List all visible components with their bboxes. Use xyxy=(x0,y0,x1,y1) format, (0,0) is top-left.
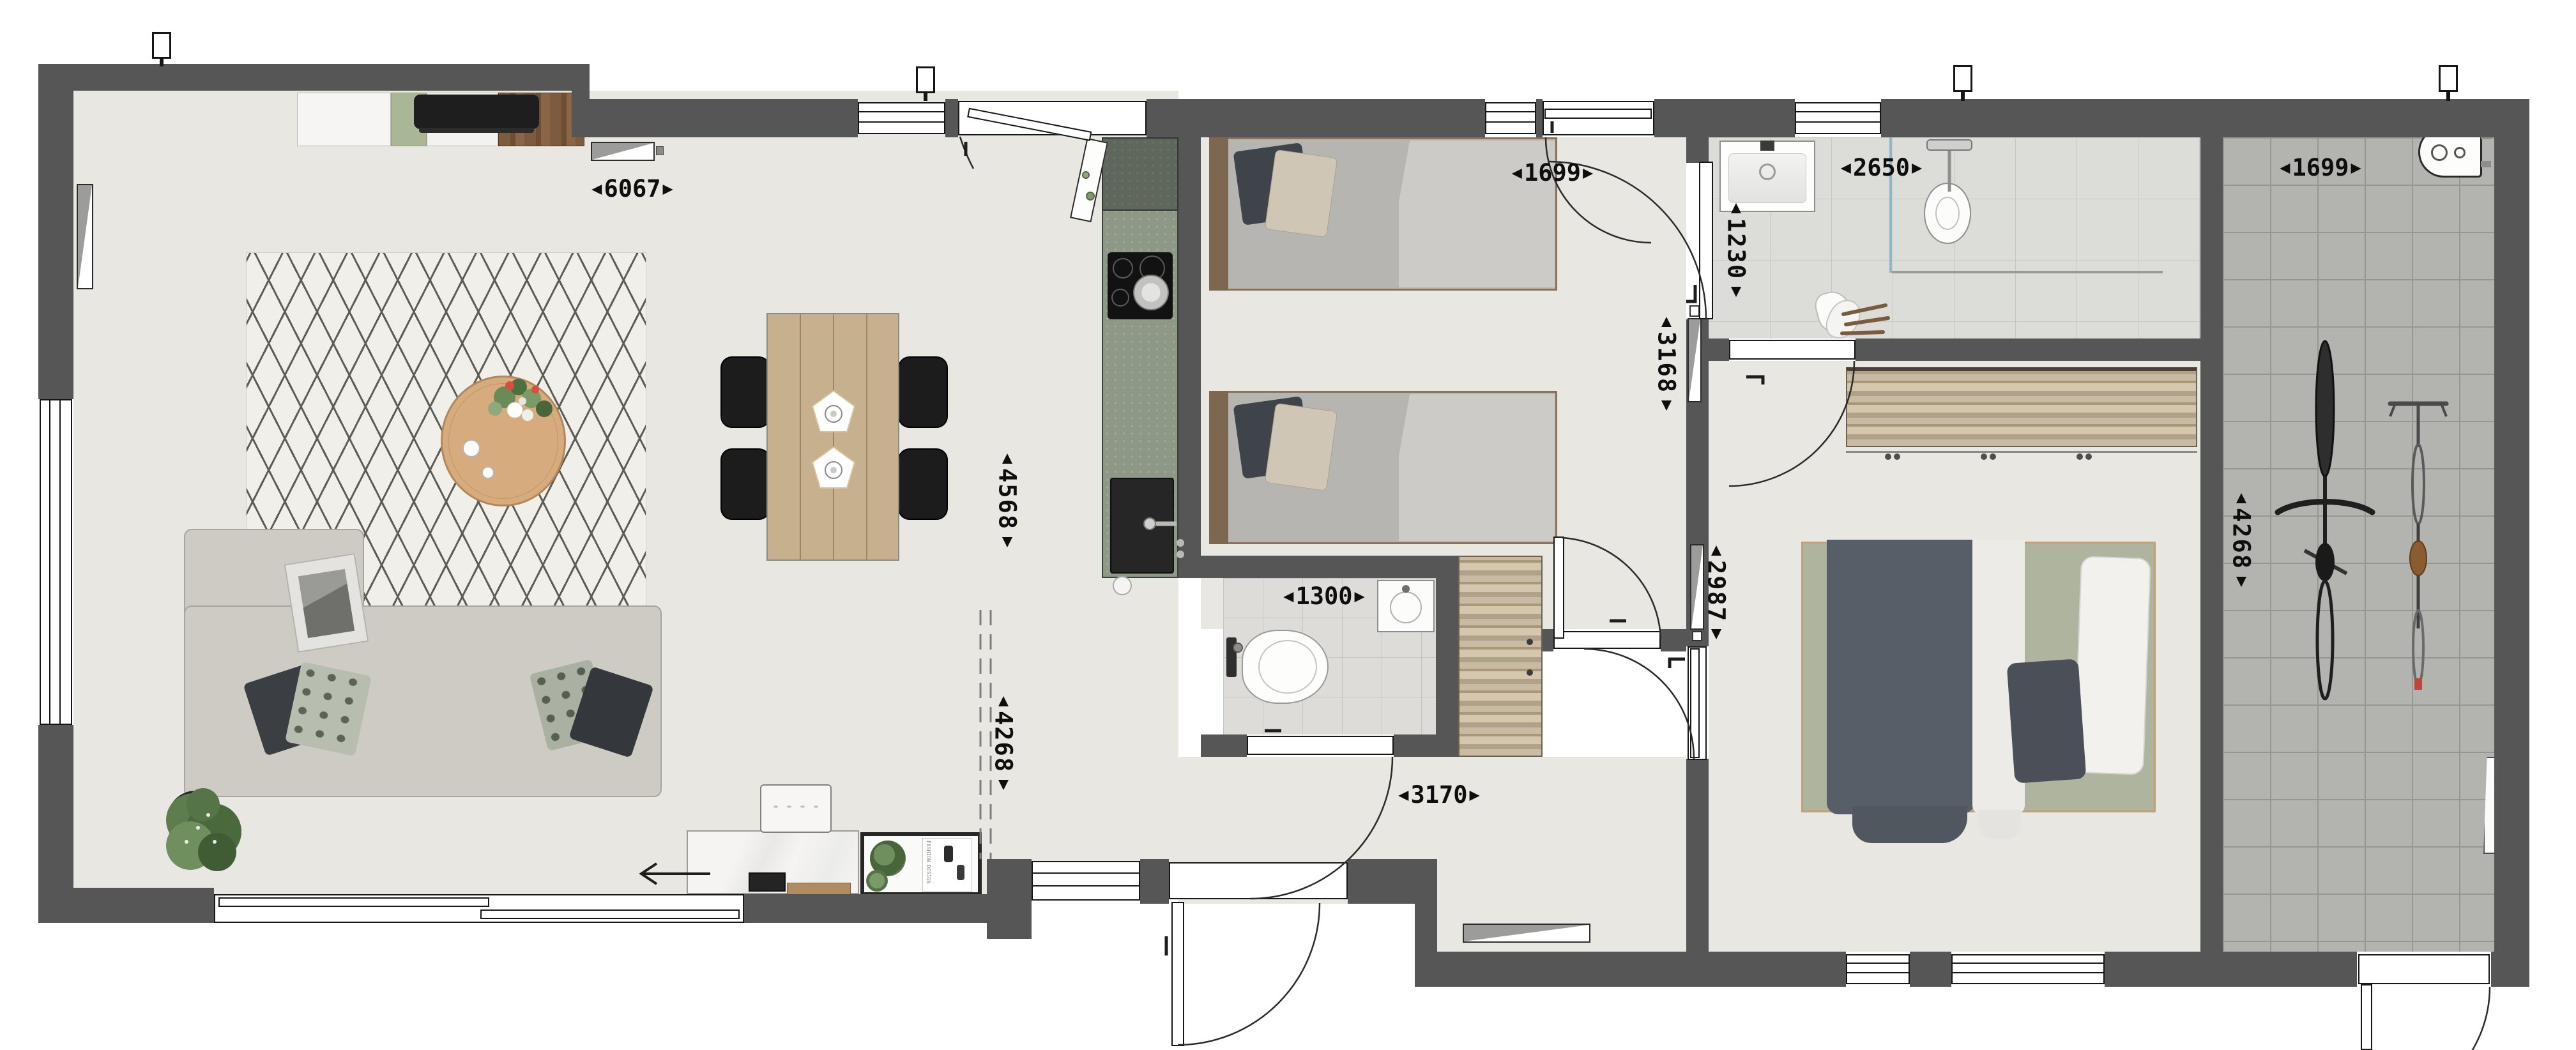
arrow-down-icon: ▼ xyxy=(1002,533,1012,550)
dining-chair xyxy=(720,356,770,428)
wardrobe-rail xyxy=(1846,451,2197,453)
master-sheet-drape xyxy=(1979,810,2021,839)
wall-top-b xyxy=(945,99,958,137)
arrow-left-icon: ◀ xyxy=(1841,159,1851,176)
radiator-cap xyxy=(1689,305,1700,317)
bedroom-door-leaf xyxy=(1553,536,1564,639)
entry-door-leaf xyxy=(1171,902,1184,1046)
window-bedroom-top xyxy=(1485,102,1536,134)
floor-plan: FASHION DESIGN xyxy=(0,0,2576,1050)
sliding-door-panel-left xyxy=(218,897,489,907)
wall-wc-top xyxy=(1178,556,1458,578)
dining-chair xyxy=(898,448,948,520)
cabinet-poster-figure xyxy=(944,846,953,862)
coffee-cup xyxy=(462,439,480,457)
storage-door-leaf xyxy=(2361,984,2372,1050)
dining-chair xyxy=(898,356,948,428)
wall-bedroom-bottom-right xyxy=(1661,629,1686,651)
wall-top-a xyxy=(588,99,858,137)
sideboard-white-left xyxy=(297,93,391,146)
storage-door-threshold xyxy=(2358,954,2490,984)
wall-entry-post xyxy=(1140,859,1169,904)
radiator-cap xyxy=(1692,631,1702,641)
master-pillow-white xyxy=(2073,556,2151,775)
wall-bedroom-bath-stub xyxy=(1686,137,1709,163)
radiator-living-left xyxy=(77,184,93,289)
handle-bathroom-door xyxy=(1686,285,1695,301)
window-master-2 xyxy=(1951,954,2105,984)
entry-sidelight xyxy=(1032,861,1140,901)
dim-hall-width: ◀ 3170 ▶ xyxy=(1378,782,1500,807)
cabinet-knob xyxy=(1527,669,1533,676)
sliding-door-panel-right xyxy=(480,909,740,919)
wall-master-left-lower xyxy=(1686,759,1709,952)
arrow-up-icon: ▲ xyxy=(2236,489,2246,506)
arrow-down-icon: ▼ xyxy=(1661,396,1672,413)
arrow-down-icon: ▼ xyxy=(998,775,1009,793)
handle-master-door xyxy=(1670,659,1685,668)
bed1-headboard xyxy=(1209,137,1228,291)
arrow-down-icon: ▼ xyxy=(1711,625,1721,642)
arrow-down-icon: ▼ xyxy=(1731,282,1741,300)
window-master-1 xyxy=(1846,954,1910,984)
sofa-photo-pillow-print xyxy=(298,569,354,638)
arrow-up-icon: ▲ xyxy=(998,692,1009,709)
bathroom-door-leaf xyxy=(1699,162,1713,319)
window-left-wall xyxy=(40,399,72,725)
shower-head-ring xyxy=(1935,197,1960,230)
bed2-pillow xyxy=(1265,403,1338,491)
arrow-right-icon: ▶ xyxy=(1470,786,1480,803)
hob-burner xyxy=(1113,258,1133,278)
roof-vent xyxy=(916,66,935,93)
dim-bathroom-width: ◀ 2650 ▶ xyxy=(1825,155,1937,179)
dining-table xyxy=(766,313,899,561)
arrow-left-icon: ◀ xyxy=(1512,164,1522,181)
wall-top-d xyxy=(1536,99,1543,137)
arrow-left-icon: ◀ xyxy=(591,180,602,197)
dim-bathroom-depth: ▲ 1230 ▼ xyxy=(1722,185,1750,313)
cabinet-poster-figure xyxy=(957,865,964,880)
dim-living-width: ◀ 6067 ▶ xyxy=(578,176,687,201)
wall-storage-left xyxy=(2200,137,2223,952)
toilet-bowl-inner xyxy=(1258,640,1317,694)
vent-stem xyxy=(2446,92,2450,101)
roof-vent xyxy=(1953,65,1972,92)
radiator-valve xyxy=(656,146,664,155)
bed1-pillow xyxy=(1265,149,1338,238)
radiator-hall xyxy=(1463,924,1590,943)
bathroom-faucet-ring xyxy=(1759,164,1776,180)
cabinet-poster-text: FASHION DESIGN xyxy=(925,841,931,889)
door-bedroom-top-leaf xyxy=(1544,109,1652,119)
bath-master-door-threshold xyxy=(1729,340,1856,360)
pantry-jar xyxy=(1082,171,1090,179)
boiler-pipe xyxy=(2481,161,2491,167)
arrow-right-icon: ▶ xyxy=(1583,164,1593,181)
wall-bottom-mid xyxy=(1415,952,1846,987)
arrow-right-icon: ▶ xyxy=(1912,159,1922,176)
wall-wc-bottom-right xyxy=(1394,734,1458,757)
wall-bedroom-bottom-left xyxy=(1543,629,1553,651)
dim-wc-width: ◀ 1300 ▶ xyxy=(1267,584,1381,608)
wall-entry-step xyxy=(987,859,1032,939)
wall-wc-bottom-left xyxy=(1201,734,1247,757)
kitchen-sink xyxy=(1110,478,1174,574)
arrow-right-icon: ▶ xyxy=(663,180,673,197)
kitchen-upper-cabinet xyxy=(1102,137,1178,211)
arrow-left-icon: ◀ xyxy=(1283,588,1293,605)
vent-stem xyxy=(1961,92,1965,101)
roof-vent xyxy=(152,32,171,59)
radiator-living-top xyxy=(591,142,655,161)
arrow-right-icon: ▶ xyxy=(1355,588,1365,605)
hob-pot xyxy=(1133,275,1169,310)
dim-hall-depth: ▲ 4268 ▼ xyxy=(989,659,1018,825)
bedroom-door-threshold xyxy=(1553,631,1661,649)
wall-wc-right xyxy=(1436,578,1458,757)
radiator-hall-wall xyxy=(1688,318,1702,402)
master-duvet-drape xyxy=(1852,806,1967,843)
wall-left-lower xyxy=(38,725,73,893)
tv-soundbar xyxy=(419,128,534,133)
master-duvet xyxy=(1827,540,1977,814)
wall-right xyxy=(2494,99,2529,987)
hall-cabinet xyxy=(1458,556,1543,757)
bathroom-faucet xyxy=(1760,141,1774,151)
wall-kitchen-bedroom xyxy=(1178,137,1201,556)
arrow-left-icon: ◀ xyxy=(2280,159,2290,176)
window-living-top xyxy=(858,102,945,134)
window-bathroom-top xyxy=(1795,102,1881,134)
kitchen-bowl xyxy=(1113,576,1132,595)
cabinet-knob xyxy=(1527,639,1533,645)
pantry-jar xyxy=(1086,192,1095,201)
arrow-down-icon: ▼ xyxy=(2236,572,2246,590)
wall-entry-right xyxy=(1348,859,1415,904)
roof-vent xyxy=(2439,65,2458,92)
wall-top-left xyxy=(38,64,588,91)
dim-master-height: ▲ 2987 ▼ xyxy=(1702,520,1731,663)
door-arc-entry xyxy=(1178,903,1320,1045)
dim-storage-depth: ▲ 4268 ▼ xyxy=(2227,456,2256,622)
door-arc-storage xyxy=(2366,987,2490,1050)
cabinet-plant-small xyxy=(866,870,888,892)
wall-bottom-master-right xyxy=(2105,952,2357,987)
boiler-dial-small xyxy=(2454,147,2465,158)
wall-top-f xyxy=(1881,99,2529,137)
wall-top-e xyxy=(1654,99,1795,137)
plant-pot xyxy=(167,791,224,847)
toilet-flush-plate xyxy=(1226,637,1237,677)
shower-mixer xyxy=(1926,139,1972,151)
arrow-up-icon: ▲ xyxy=(1661,312,1672,330)
towel-rail xyxy=(1892,271,2163,273)
vent-stem xyxy=(160,59,164,66)
wall-top-jog xyxy=(572,64,590,137)
entry-door-threshold xyxy=(1169,862,1348,899)
wall-top-c xyxy=(1147,99,1485,137)
coffee-cup-small xyxy=(482,466,494,479)
bed2-headboard xyxy=(1209,391,1228,544)
tv xyxy=(414,95,539,129)
wall-left-upper xyxy=(38,89,73,399)
dim-hall-length: ▲ 3168 ▼ xyxy=(1652,286,1681,439)
arrow-left-icon: ◀ xyxy=(1398,786,1408,803)
dim-bedroom-door: ◀ 1699 ▶ xyxy=(1500,160,1605,185)
dim-storage-width: ◀ 1699 ▶ xyxy=(2266,155,2375,179)
arrow-up-icon: ▲ xyxy=(1002,449,1012,466)
wall-bottom-living xyxy=(744,894,1025,923)
bench-buttons xyxy=(769,803,823,810)
dim-living-depth: ▲ 4568 ▼ xyxy=(993,423,1022,576)
wardrobe xyxy=(1846,367,2197,447)
wall-bath-bottom-right xyxy=(1856,339,2200,361)
arrow-up-icon: ▲ xyxy=(1711,541,1721,558)
master-door-leaf xyxy=(1690,648,1700,758)
wall-bottom-left-corner xyxy=(38,888,214,923)
boiler-dial xyxy=(2431,144,2448,161)
arrow-right-icon: ▶ xyxy=(2351,159,2361,176)
wc-sink-basin xyxy=(1390,591,1422,623)
vent-stem xyxy=(924,93,927,101)
hob-burner xyxy=(1111,289,1129,307)
wall-bottom-between-windows xyxy=(1910,952,1951,987)
wc-door-leaf xyxy=(1247,736,1394,755)
wall-bath-bottom-left xyxy=(1709,339,1729,361)
arrow-up-icon: ▲ xyxy=(1731,199,1741,216)
island-tray xyxy=(749,872,786,892)
dining-chair xyxy=(720,448,770,520)
bed2-sheet xyxy=(1399,394,1555,541)
door-arc-master xyxy=(1584,649,1694,759)
master-pillow-gray xyxy=(2007,658,2087,783)
storage-floor xyxy=(2223,137,2494,952)
